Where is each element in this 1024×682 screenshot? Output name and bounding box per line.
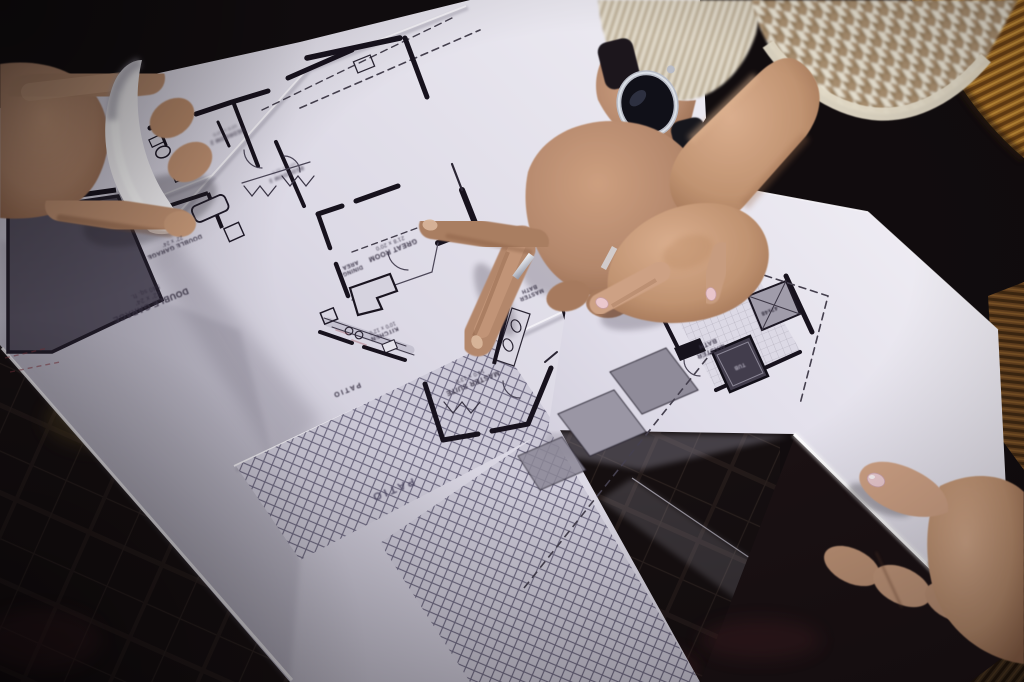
photo: BEDROOM 2 10'0 x 10'0 BEDROOM 3 10'0 x 1… bbox=[0, 0, 1024, 682]
photo-canvas bbox=[0, 0, 1024, 682]
